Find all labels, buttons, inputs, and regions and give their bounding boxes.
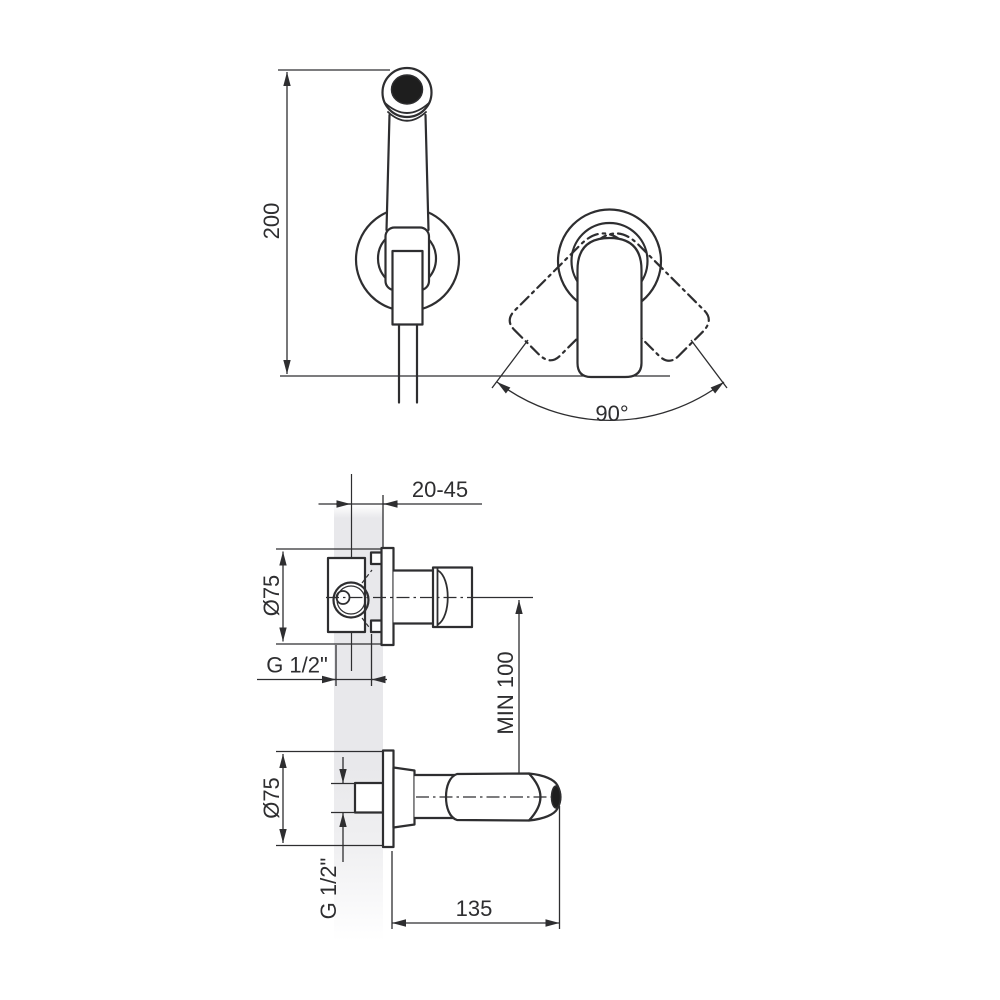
valve-escutcheon-diameter-label: Ø75 xyxy=(259,575,284,617)
height-dimension-label: 200 xyxy=(259,203,284,240)
min-clearance-label: MIN 100 xyxy=(493,651,518,734)
projection-length-label: 135 xyxy=(456,896,493,921)
wall-depth-label: 20-45 xyxy=(412,477,468,502)
sprayer-handle-end xyxy=(393,251,423,325)
valve-thread-label: G 1/2" xyxy=(266,652,328,677)
valve-fixing-lug-bottom xyxy=(371,621,382,633)
sprayer-handle-body xyxy=(386,110,430,232)
valve-fixing-lug-top xyxy=(371,553,382,565)
mixer-lever-handle xyxy=(578,238,642,377)
technical-drawing-page: 200 90° xyxy=(0,0,1000,1000)
holder-thread-label: G 1/2" xyxy=(316,858,341,920)
holder-escutcheon-diameter-label: Ø75 xyxy=(259,777,284,819)
swivel-angle-label: 90° xyxy=(595,401,628,426)
dimension-projection-135: 135 xyxy=(392,806,560,929)
holder-escutcheon-plate xyxy=(383,751,394,848)
sprayer-head xyxy=(383,68,432,121)
holder-section-view xyxy=(355,751,561,848)
dimension-min-clearance-100: MIN 100 xyxy=(493,600,519,794)
valve-escutcheon-plate xyxy=(382,548,394,645)
installation-diagram: 200 90° xyxy=(0,0,1000,1000)
valve-front-view xyxy=(505,210,714,378)
hose-connection-block xyxy=(355,783,383,813)
holder-collar xyxy=(394,768,415,828)
sprayer-nozzle-side xyxy=(552,786,561,808)
sprayer-front-view xyxy=(356,68,459,403)
sprayer-nozzle-face xyxy=(392,75,423,104)
